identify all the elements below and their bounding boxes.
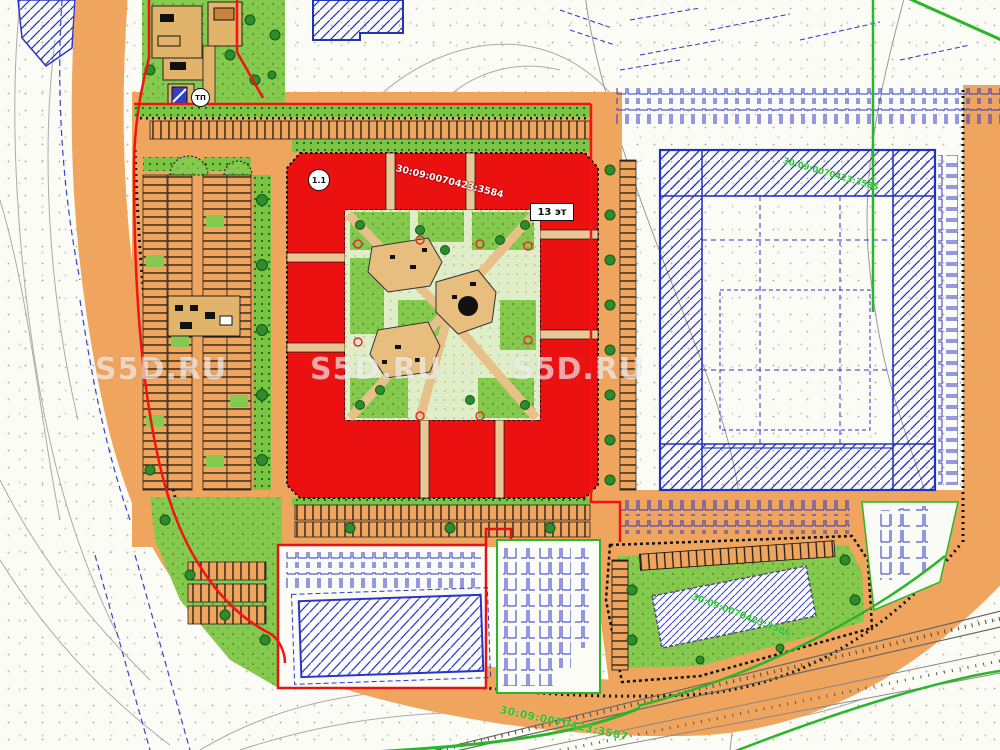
floors-label: 13 эт xyxy=(530,203,574,221)
watermark: S5D.RU xyxy=(95,352,227,387)
building-number-badge: 1.1 xyxy=(308,169,330,191)
south-parcels xyxy=(278,529,600,693)
sports-area xyxy=(142,0,285,108)
transformer-text: ТП xyxy=(195,94,206,102)
transformer-label: ТП xyxy=(191,88,210,107)
site-plan: 1.1 13 эт ТП 30:09:0070423:3584 30:09:00… xyxy=(0,0,1000,750)
building-number-text: 1.1 xyxy=(312,176,326,185)
watermark: S5D.RU xyxy=(512,352,644,387)
courtyard xyxy=(345,210,540,420)
cad-east-building xyxy=(616,8,1000,534)
watermark: S5D.RU xyxy=(310,352,442,387)
bottom-left-parking xyxy=(145,465,282,690)
